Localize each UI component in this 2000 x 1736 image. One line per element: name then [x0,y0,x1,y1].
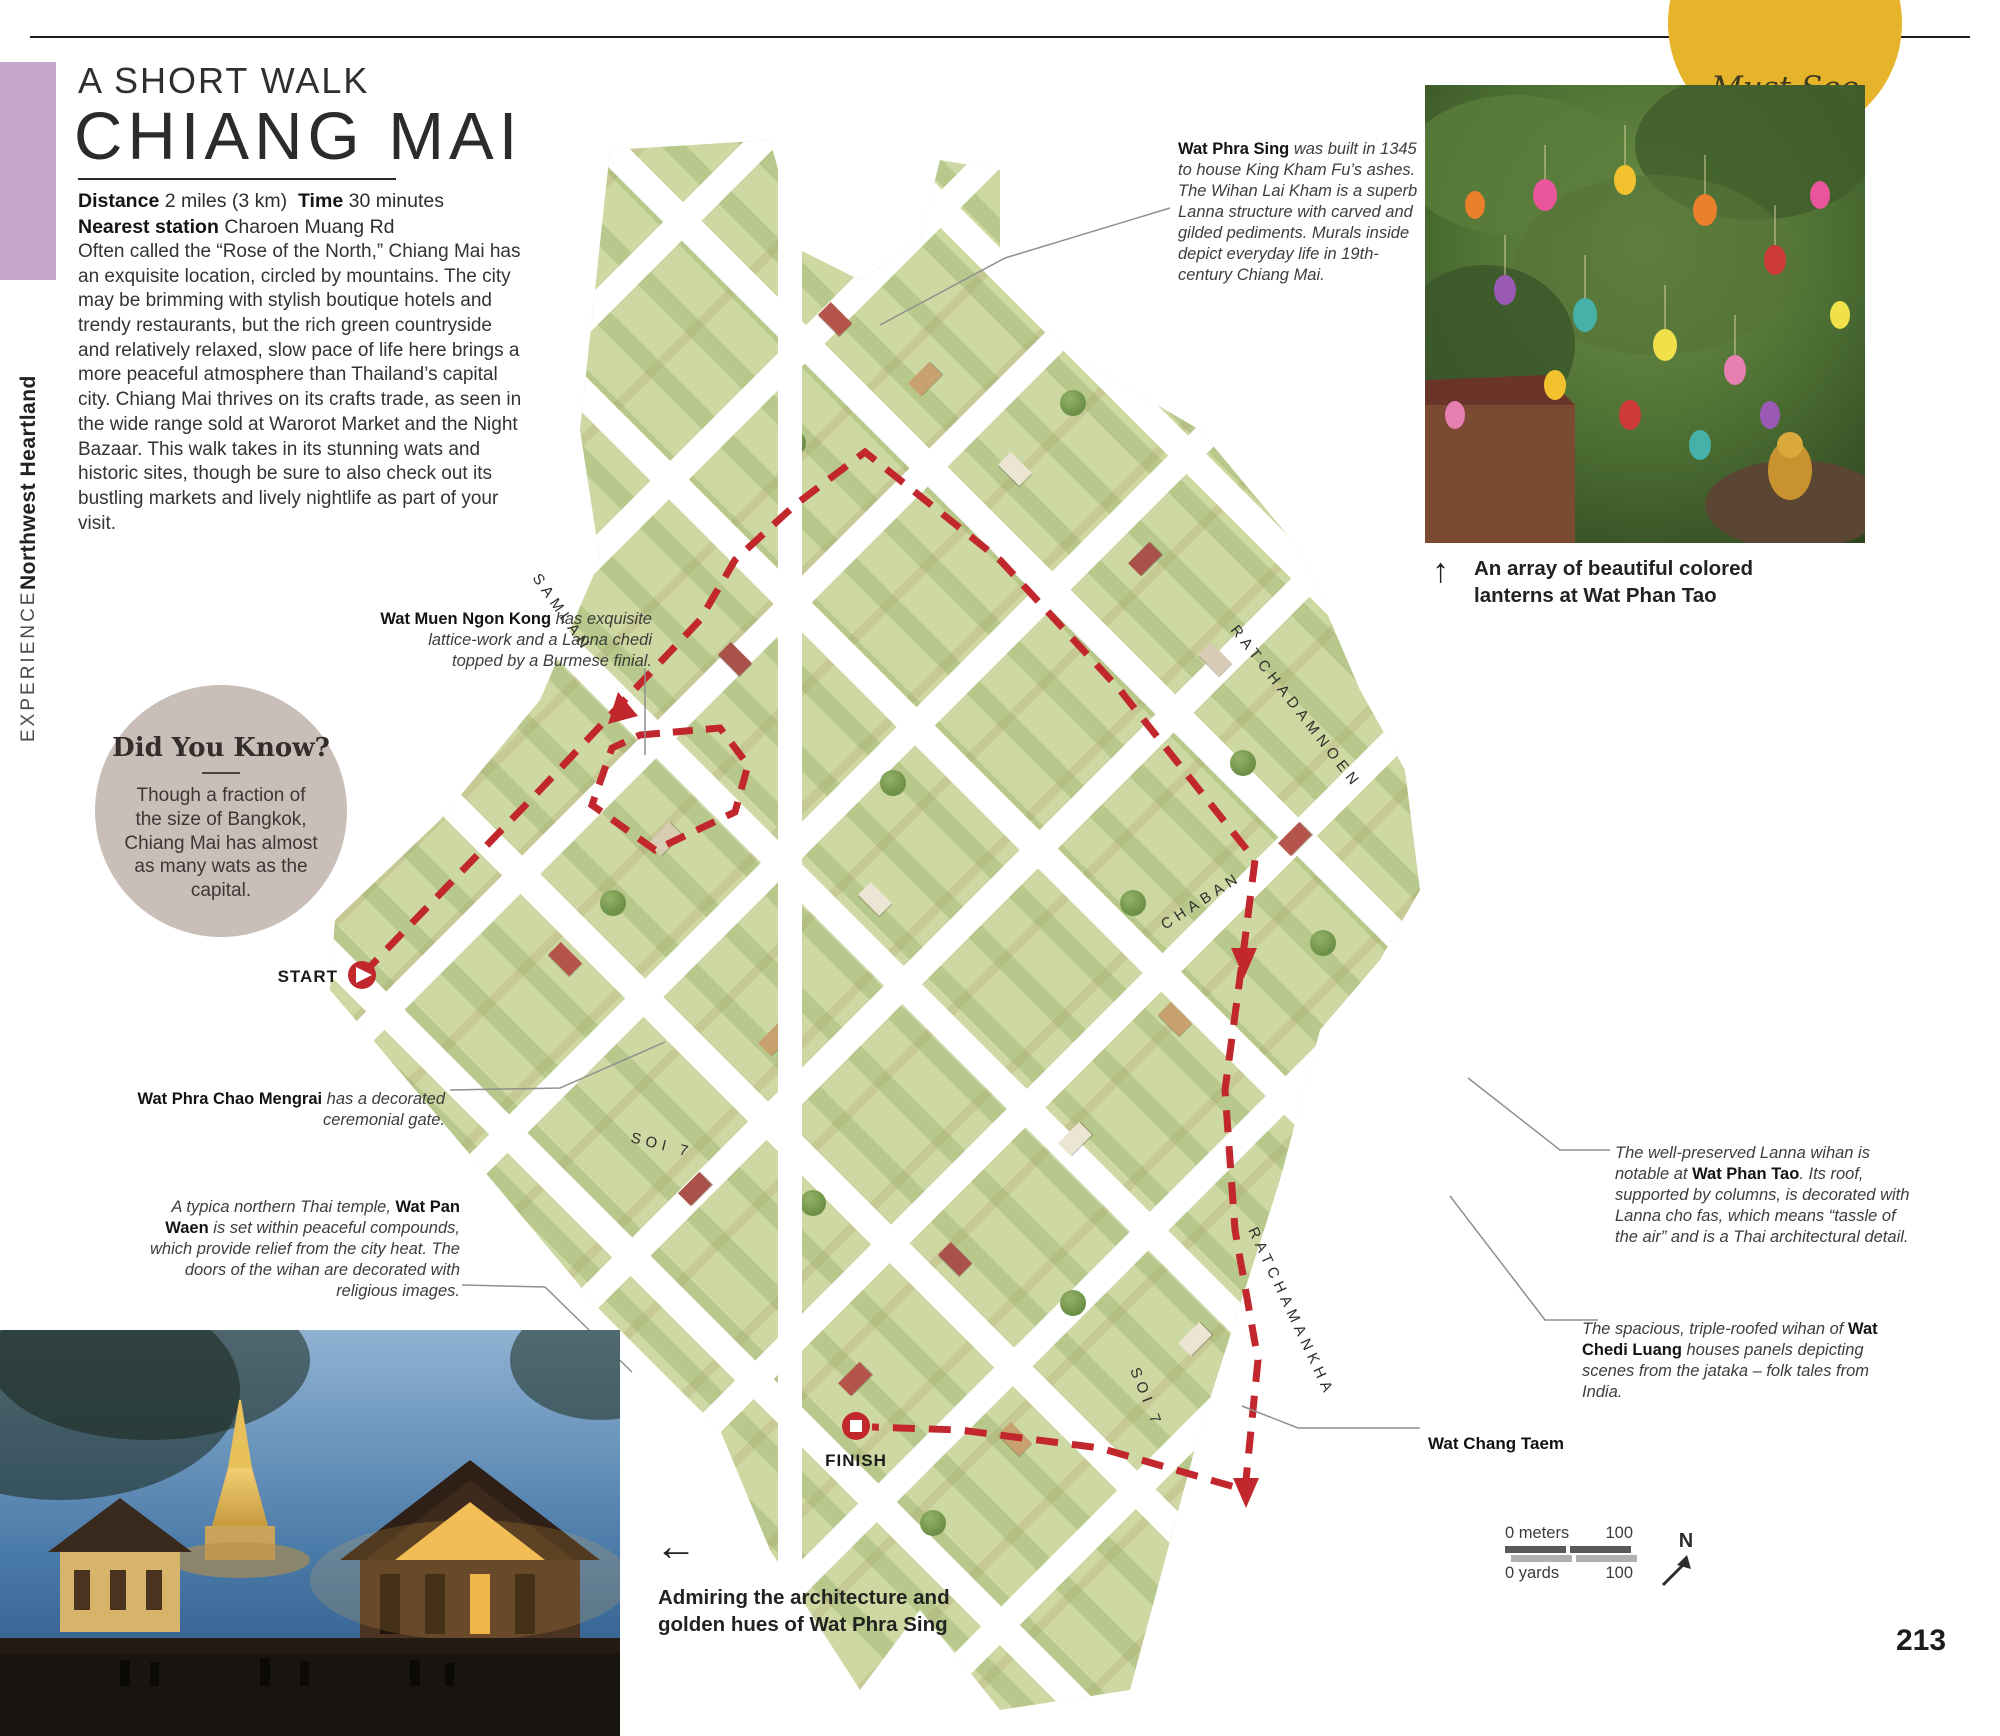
sidebar-experience-label: EXPERIENCE [18,590,40,742]
north-indicator: N [1652,1530,1702,1594]
callout-wat-phan-tao-name: Wat Phan Tao [1692,1165,1799,1183]
callout-wat-phan-tao: The well-preserved Lanna wihan is notabl… [1615,1143,1920,1249]
lanterns-photo-illustration [1425,85,1865,543]
north-label: N [1670,1530,1702,1553]
north-arrow-icon [1657,1553,1697,1589]
street-label-ratchadamnoen: RATCHADAMNOEN [1227,622,1365,792]
scale-meters-end: 100 [1605,1524,1633,1543]
callout-wat-muen-ngon-kong: Wat Muen Ngon Kong has exquisite lattice… [380,609,652,672]
distance-value: 2 miles (3 km) [165,190,287,212]
callout-wat-phra-chao-mengrai: Wat Phra Chao Mengrai has a decorated ce… [135,1089,445,1131]
station-label: Nearest station [78,216,219,238]
scale-meters-start: 0 meters [1505,1524,1569,1543]
sidebar-section-label: EXPERIENCE Northwest Heartland [6,288,52,768]
section-color-tab [0,62,56,280]
scale-bar-graphic [1505,1546,1633,1562]
callout-wat-chedi-luang-pre: The spacious, triple-roofed wihan of [1582,1320,1848,1338]
walk-kicker: A SHORT WALK [78,60,369,102]
street-label-soi7-south: SOI 7 [1126,1365,1165,1430]
callout-wat-chedi-luang: The spacious, triple-roofed wihan of Wat… [1582,1319,1882,1403]
street-label-chaban: CHABAN [1158,869,1245,934]
callout-wat-phra-chao-mengrai-name: Wat Phra Chao Mengrai [138,1090,323,1108]
wat-phra-sing-photo [0,1330,620,1736]
distance-label: Distance [78,190,159,212]
leader-wat-phan-tao [1468,1078,1610,1150]
route-arrow [1231,948,1257,978]
street-label-soi7-west: SOI 7 [629,1129,695,1161]
callout-wat-phra-sing: Wat Phra Sing was built in 1345 to house… [1178,139,1430,287]
map-scale-bar: 0 meters 100 0 yards 100 [1505,1524,1633,1583]
callout-wat-pan-waen: A typica northern Thai temple, Wat Pan W… [145,1197,460,1303]
page-number: 213 [1896,1624,1946,1658]
callout-wat-phra-sing-text: was built in 1345 to house King Kham Fu’… [1178,140,1417,285]
sidebar-region-label: Northwest Heartland [17,375,41,590]
callout-wat-muen-ngon-kong-name: Wat Muen Ngon Kong [380,610,551,628]
callout-wat-chang-taem: Wat Chang Taem [1428,1433,1608,1455]
finish-label: FINISH [825,1451,887,1470]
callout-wat-pan-waen-pre: A typica northern Thai temple, [171,1198,395,1216]
callout-wat-phra-chao-mengrai-text: has a decorated ceremonial gate. [322,1090,445,1129]
temple-caption: Admiring the architecture and golden hue… [658,1585,958,1638]
leader-wat-chedi-luang [1450,1196,1598,1320]
did-you-know-divider [202,772,240,774]
start-label: START [278,967,338,986]
route-arrow [1233,1478,1259,1508]
wat-phra-sing-photo-illustration [0,1330,620,1736]
scale-yards-end: 100 [1605,1564,1633,1583]
callout-wat-phra-sing-name: Wat Phra Sing [1178,140,1289,158]
scale-yards-start: 0 yards [1505,1564,1559,1583]
lanterns-photo [1425,85,1865,543]
finish-marker-square-icon [850,1420,862,1432]
lanterns-caption: An array of beautiful colored lanterns a… [1474,556,1804,609]
left-arrow-icon: ← [655,1522,697,1570]
walk-route-loop [592,728,748,850]
up-arrow-icon: ↑ [1432,552,1449,591]
